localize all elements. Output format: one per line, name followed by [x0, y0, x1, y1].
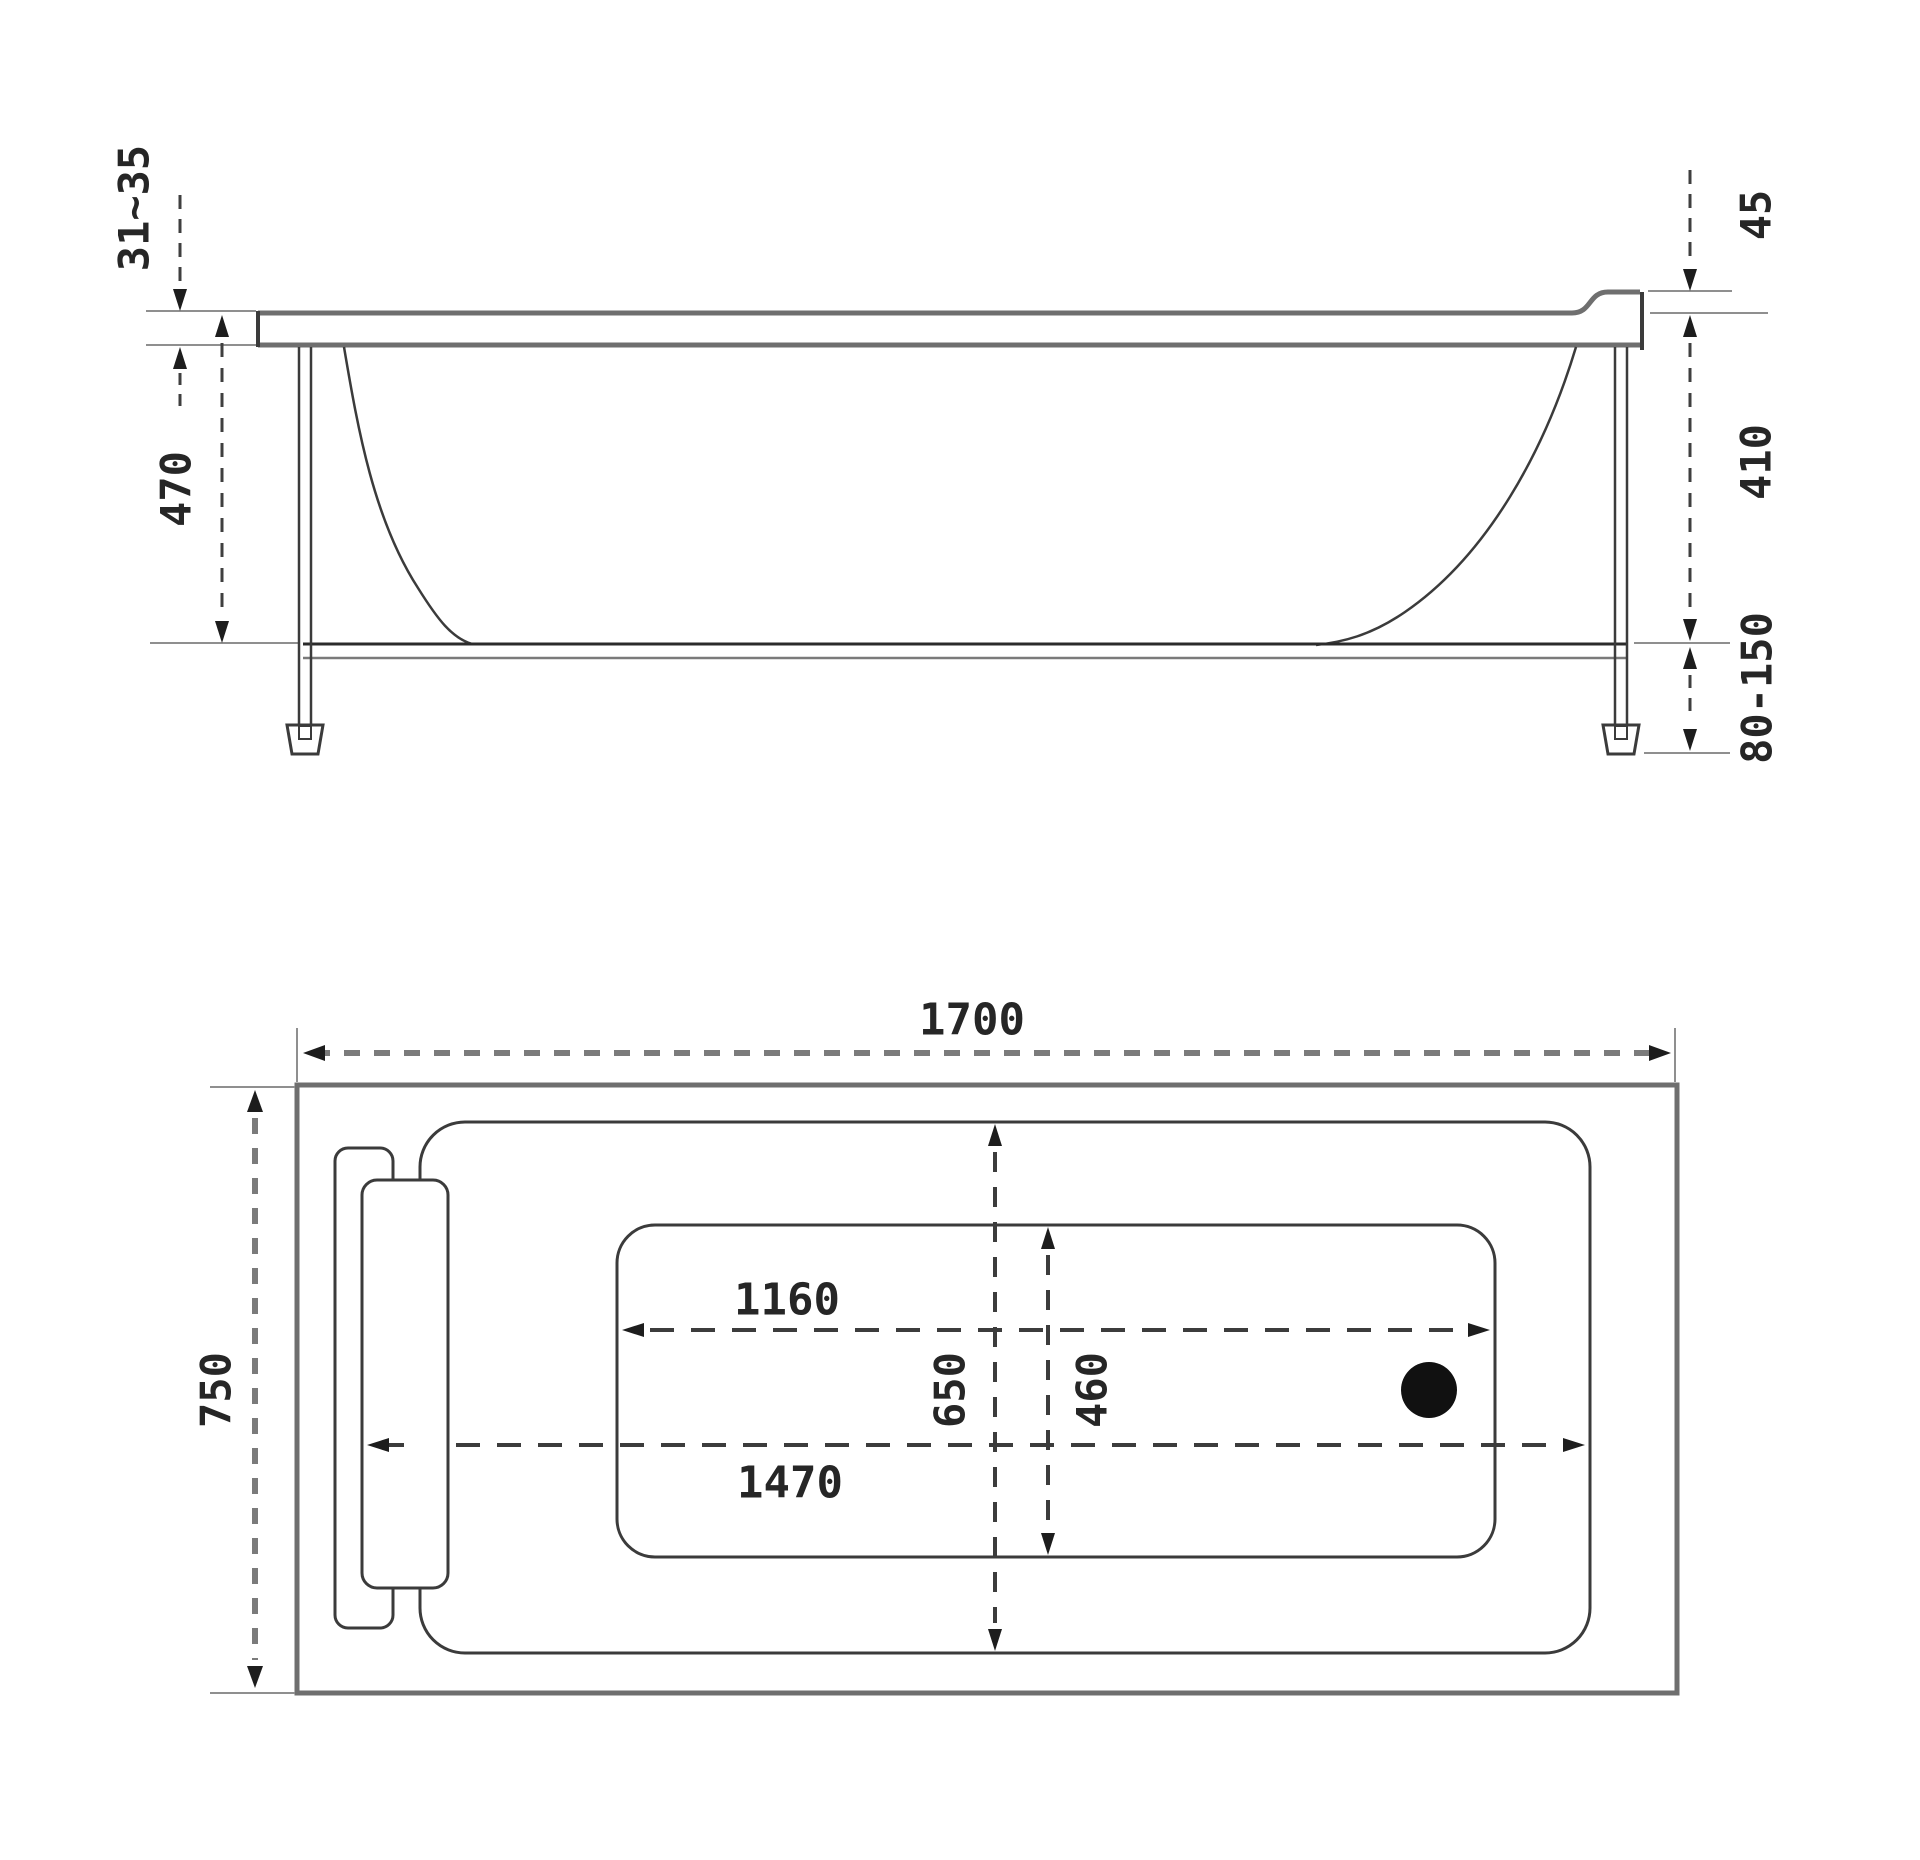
- drawing-canvas: 31~35 470 45 410 80-150: [0, 0, 1920, 1860]
- top-plan-view: 1700 750 1160 1470: [192, 995, 1678, 1694]
- dim-bottom-length-1160: 1160: [622, 1275, 1490, 1338]
- arrow-down-icon: [1041, 1533, 1055, 1555]
- dim-inner-length-1470: 1470: [367, 1438, 1585, 1509]
- arrow-down-icon: [173, 289, 187, 311]
- arrow-left-icon: [303, 1045, 325, 1061]
- dim-overall-width-750: 750: [192, 1087, 296, 1693]
- dim-ledge-45: 45: [1683, 170, 1781, 291]
- arrow-up-icon: [1683, 315, 1697, 337]
- headrest-pillow: [362, 1180, 448, 1588]
- tub-wall-left-curve: [344, 347, 472, 644]
- dim-label-overall-width: 750: [192, 1352, 241, 1428]
- arrow-left-icon: [622, 1323, 644, 1337]
- side-elevation-view: 31~35 470 45 410 80-150: [110, 145, 1782, 764]
- arrow-up-icon: [988, 1124, 1002, 1146]
- dim-label-feet: 80-150: [1733, 612, 1782, 764]
- arrow-right-icon: [1468, 1323, 1490, 1337]
- arrow-up-icon: [1683, 647, 1697, 669]
- dim-label-rim-thickness: 31~35: [110, 145, 159, 271]
- arrow-down-icon: [1683, 269, 1697, 291]
- dim-label-bottom-length: 1160: [734, 1275, 840, 1326]
- dim-label-depth: 410: [1732, 424, 1781, 500]
- foot-notch-left: [299, 726, 311, 739]
- tub-rim-top-profile: [258, 292, 1640, 313]
- drain-hole: [1401, 1362, 1457, 1418]
- arrow-right-icon: [1649, 1045, 1671, 1061]
- arrow-down-icon: [247, 1666, 263, 1688]
- plan-outer-rectangle: [297, 1085, 1677, 1693]
- arrow-up-icon: [1041, 1227, 1055, 1249]
- tub-wall-right-curve: [1316, 347, 1576, 645]
- dim-bottom-width-460: 460: [1041, 1227, 1117, 1555]
- arrow-up-icon: [247, 1090, 263, 1112]
- dim-label-bottom-width: 460: [1068, 1352, 1117, 1428]
- dim-depth-410: 410: [1683, 315, 1781, 641]
- arrow-down-icon: [1683, 729, 1697, 751]
- dim-label-height: 470: [152, 451, 201, 527]
- arrow-up-icon: [215, 315, 229, 337]
- dim-label-overall-length: 1700: [919, 995, 1025, 1046]
- dim-label-inner-length: 1470: [737, 1458, 843, 1509]
- bathtub-technical-drawing: 31~35 470 45 410 80-150: [0, 0, 1920, 1860]
- arrow-right-icon: [1563, 1438, 1585, 1452]
- frame-leg-left: [287, 347, 323, 754]
- dim-height-470: 470: [152, 315, 230, 643]
- arrow-down-icon: [988, 1629, 1002, 1651]
- dim-label-ledge: 45: [1732, 190, 1781, 241]
- dim-rim-thickness: 31~35: [110, 145, 188, 408]
- dim-label-inner-width: 650: [926, 1352, 975, 1428]
- foot-notch-right: [1615, 726, 1627, 739]
- arrow-down-icon: [215, 621, 229, 643]
- frame-leg-right: [1603, 347, 1639, 754]
- dim-overall-length-1700: 1700: [297, 995, 1675, 1083]
- dim-feet-80-150: 80-150: [1683, 612, 1782, 764]
- dim-inner-width-650: 650: [926, 1124, 1003, 1651]
- arrow-up-icon: [173, 347, 187, 369]
- arrow-down-icon: [1683, 619, 1697, 641]
